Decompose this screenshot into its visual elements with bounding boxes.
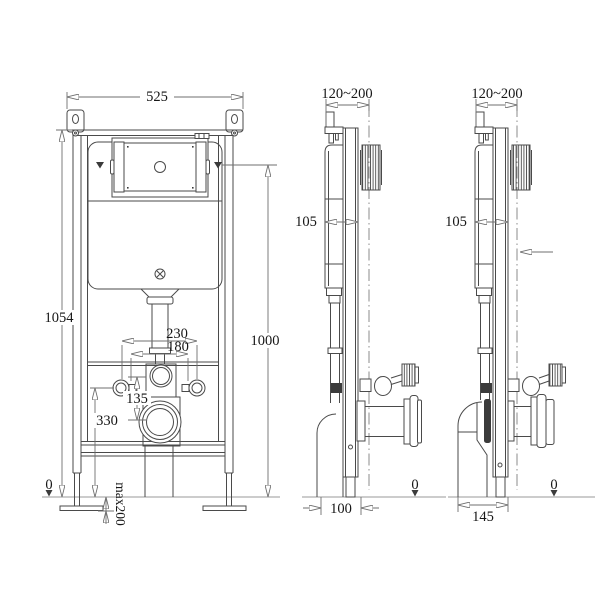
waste-connector-cap-right — [537, 395, 546, 448]
window-corner-mark — [127, 187, 129, 189]
top-anchor — [326, 112, 334, 127]
level-mark-right — [214, 162, 222, 169]
level-mark-left — [96, 162, 104, 169]
funnel-step2-right — [479, 296, 490, 304]
pipe-collar-right — [478, 348, 492, 354]
dim-flush-to-waste: 135 — [126, 391, 148, 407]
front-view — [60, 110, 246, 511]
datum-triangle-front — [46, 490, 53, 497]
inlet-valve-body — [360, 379, 371, 392]
waste-connector-flange — [357, 401, 365, 441]
dim-waste-height: 330 — [96, 413, 118, 429]
waste-connector-ring — [404, 399, 410, 444]
wall-bracket-hatched-right — [512, 145, 530, 190]
outlet-bend-dark — [484, 399, 491, 443]
tank-screw-cross — [157, 271, 163, 277]
bracket-pin — [329, 134, 334, 144]
inlet-valve-body-right — [508, 379, 519, 392]
dim-front-width: 525 — [146, 89, 168, 105]
mounting-ear-left — [67, 110, 84, 132]
dim-front-height-left: 1054 — [45, 310, 75, 326]
inlet-valve-knob — [375, 377, 392, 396]
tank-profile — [325, 145, 343, 288]
dim-bolt-spacing-inner: 180 — [167, 339, 189, 355]
funnel-step1-right — [477, 288, 492, 296]
window-corner-mark — [127, 146, 129, 148]
vertical-outlet-pipe — [458, 403, 487, 497]
wall-bracket-hatched — [362, 145, 380, 190]
bolt-nut-right — [182, 385, 189, 392]
waste-connector-cap — [410, 396, 418, 447]
fixing-bolt-profile — [331, 383, 342, 393]
bracket-pin-small-right — [486, 134, 489, 141]
datum-triangle-right — [551, 490, 558, 497]
dim-frame-offset-right: 105 — [445, 214, 467, 230]
fixing-bolt-profile-right — [481, 383, 492, 393]
technical-drawing: 525 1054 1000 230 180 135 330 0 max200 — [0, 0, 600, 600]
flush-bend-outlet — [150, 365, 172, 387]
inlet-thread — [402, 364, 415, 386]
waste-outlet — [139, 401, 181, 443]
pipe-collar — [328, 348, 342, 354]
inlet-thread-right — [549, 364, 562, 386]
dim-front-height-right: 1000 — [251, 333, 280, 349]
waste-connector-end — [418, 400, 422, 443]
inlet-thread-cap-right — [562, 367, 566, 383]
flush-funnel — [141, 289, 179, 297]
adjustable-foot — [346, 477, 355, 497]
funnel-step2 — [329, 296, 340, 304]
outlet-elbow-arc — [317, 414, 336, 433]
dim-depth-center: 120~200 — [321, 86, 372, 102]
inlet-valve-knob-right — [523, 377, 540, 396]
window-corner-mark — [192, 146, 194, 148]
waste-connector-end-right — [546, 400, 554, 445]
vertical-outlet-elbow — [458, 402, 482, 426]
bracket-pin-right — [479, 134, 484, 144]
mounting-ear-right — [226, 110, 243, 132]
window-clip-left — [111, 160, 115, 174]
window-top-bracket — [195, 134, 209, 139]
foot-plate-right — [203, 506, 246, 511]
dim-outlet-distance-center: 100 — [330, 501, 352, 517]
waste-connector-body — [365, 407, 404, 437]
side-view-center — [317, 105, 422, 497]
waste-connector-flange-right — [508, 401, 514, 441]
waste-connector-body-right — [514, 407, 531, 437]
side-view-right — [458, 105, 566, 497]
top-bracket — [325, 127, 343, 134]
window-corner-mark — [192, 187, 194, 189]
window-clip-right — [206, 160, 210, 174]
frame-screw-left — [73, 130, 79, 136]
top-anchor-right — [476, 112, 484, 127]
inlet-pipe-right — [539, 375, 549, 385]
waste-connector-ring-right — [531, 397, 537, 445]
dim-depth-right: 120~200 — [471, 86, 522, 102]
fixing-bolt-right — [189, 380, 205, 396]
top-bracket-right — [475, 127, 493, 134]
inlet-pipe — [391, 375, 402, 385]
bracket-pin-small — [336, 134, 339, 141]
frame-screw-right — [232, 130, 238, 136]
adjustable-foot-right — [496, 477, 505, 497]
flush-flange — [147, 297, 173, 304]
inlet-thread-cap — [415, 367, 419, 383]
outlet-downpipe — [317, 433, 343, 497]
foot-plate-left — [60, 506, 103, 511]
tank-profile-right — [475, 145, 493, 288]
datum-triangle-center — [412, 490, 419, 497]
dim-outlet-distance-right: 145 — [472, 509, 494, 525]
funnel-step1 — [327, 288, 342, 296]
dim-foot-adjustment: max200 — [113, 482, 128, 526]
dim-frame-offset-center: 105 — [295, 214, 317, 230]
drawing-canvas: 525 1054 1000 230 180 135 330 0 max200 — [0, 0, 600, 600]
